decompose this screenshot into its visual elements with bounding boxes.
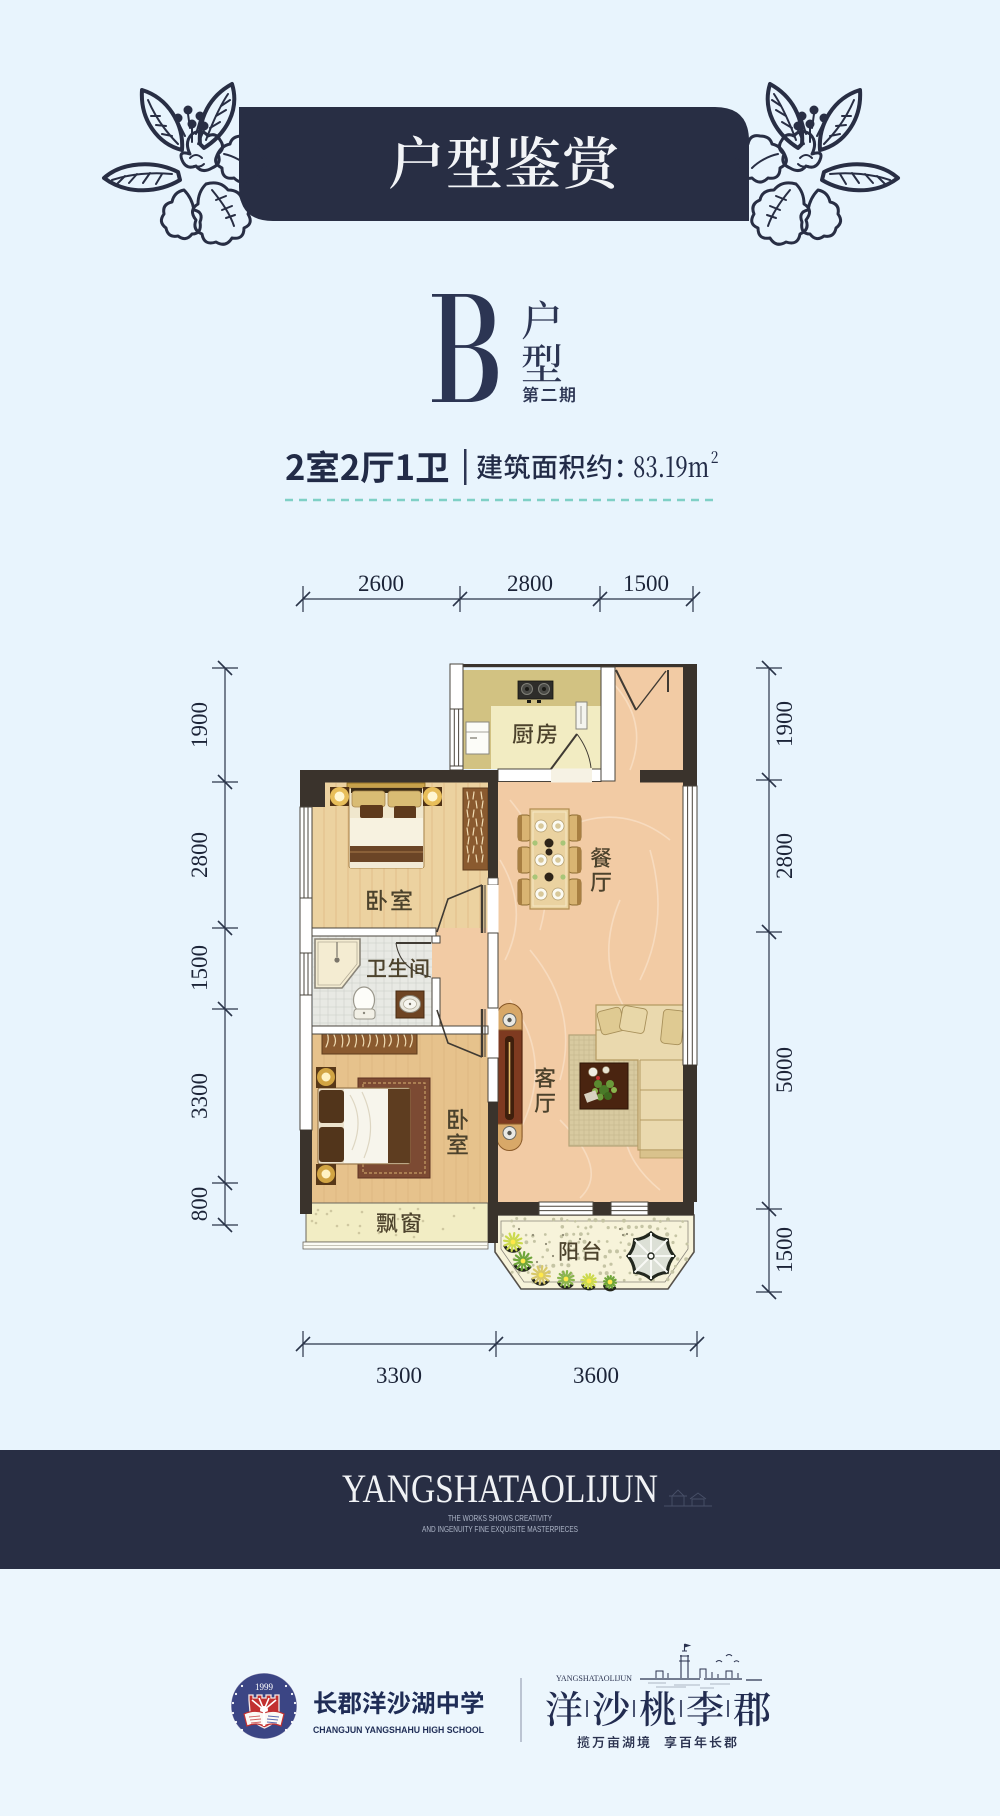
svg-text:3600: 3600 <box>573 1363 619 1388</box>
svg-text:THE WORKS SHOWS CREATIVITY: THE WORKS SHOWS CREATIVITY <box>448 1513 552 1523</box>
svg-text:5000: 5000 <box>772 1047 797 1093</box>
svg-text:YANGSHATAOLIJUN: YANGSHATAOLIJUN <box>556 1674 632 1683</box>
svg-text:CHANGJUN YANGSHAHU HIGH SCHOOL: CHANGJUN YANGSHAHU HIGH SCHOOL <box>313 1725 484 1736</box>
svg-text:AND INGENUITY FINE EXQUISITE M: AND INGENUITY FINE EXQUISITE MASTERPIECE… <box>422 1524 578 1534</box>
svg-text:1500: 1500 <box>187 945 212 991</box>
svg-text:3300: 3300 <box>376 1363 422 1388</box>
svg-text:YANGSHATAOLIJUN: YANGSHATAOLIJUN <box>342 1466 658 1511</box>
svg-text:2800: 2800 <box>187 832 212 878</box>
svg-text:3300: 3300 <box>187 1073 212 1119</box>
svg-text:1500: 1500 <box>623 571 669 596</box>
svg-text:1999: 1999 <box>255 1682 274 1692</box>
svg-text:1900: 1900 <box>772 701 797 747</box>
svg-text:1900: 1900 <box>187 702 212 748</box>
svg-text:2600: 2600 <box>358 571 404 596</box>
svg-text:1500: 1500 <box>772 1227 797 1273</box>
svg-text:800: 800 <box>187 1187 212 1222</box>
svg-text:2800: 2800 <box>507 571 553 596</box>
svg-text:2800: 2800 <box>772 833 797 879</box>
